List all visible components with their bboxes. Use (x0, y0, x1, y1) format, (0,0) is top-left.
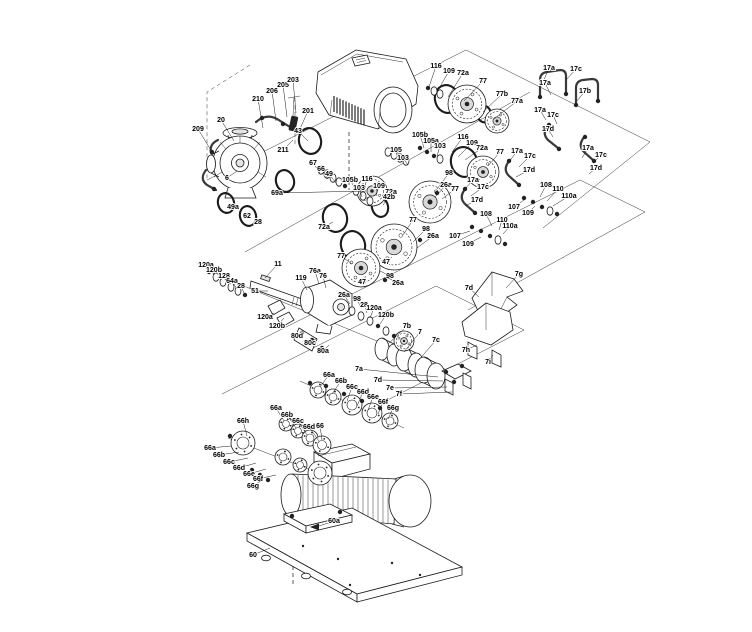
part-number: 77 (479, 78, 487, 85)
part-number: 80c (304, 340, 316, 347)
part-number: 67 (309, 160, 317, 167)
fastener (473, 211, 477, 215)
part-number: 43 (294, 128, 302, 135)
part-number: 7e (386, 385, 394, 392)
part-number: 17c (547, 112, 559, 119)
foot-bolt (262, 555, 271, 561)
part-number: 66g (247, 483, 259, 490)
motor-end-bell (389, 475, 431, 527)
pump-housing (207, 128, 268, 199)
part-number: 7d (374, 377, 382, 384)
fastener (425, 150, 429, 154)
part-number: 211 (277, 147, 288, 154)
part-number: 72a (318, 224, 330, 231)
part-number: 17c (524, 153, 536, 160)
coupling-half (382, 413, 398, 429)
washer (547, 207, 553, 215)
part-number: 17a (511, 148, 523, 155)
part-number: 7i (485, 359, 491, 366)
part-number: 107 (508, 204, 520, 211)
part-number: 77a (511, 98, 523, 105)
part-number: 116 (430, 63, 441, 70)
part-number: 98 (445, 170, 453, 177)
part-number: 69a (271, 190, 283, 197)
part-number: 210 (252, 96, 264, 103)
part-number: 120b (269, 323, 285, 330)
part-number: 17c (595, 152, 607, 159)
fastener (574, 103, 578, 107)
part-number: 77b (496, 91, 508, 98)
fastener (338, 510, 342, 514)
part-number: 105b (342, 177, 358, 184)
part-number: 17c (570, 66, 582, 73)
fastener (266, 478, 270, 482)
part-number: 119 (295, 275, 306, 282)
fastener (444, 370, 448, 374)
coupling-half (279, 417, 293, 431)
drive-unit (316, 50, 418, 133)
part-number: 77 (496, 149, 504, 156)
part-number: 17d (523, 167, 535, 174)
part-number: 80d (291, 333, 303, 340)
part-number: 203 (287, 77, 299, 84)
part-number: 109 (522, 210, 534, 217)
part-number: 72a (457, 70, 469, 77)
coupling-half (308, 461, 332, 485)
fastener (538, 95, 542, 99)
part-number: 17c (477, 184, 489, 191)
part-number: 51 (251, 288, 259, 295)
fastener (324, 384, 328, 388)
part-number: 66g (387, 405, 399, 412)
part-number: 20 (217, 117, 225, 124)
part-number: 7b (403, 323, 411, 330)
part-number: 11 (274, 261, 282, 268)
part-number: 17d (590, 165, 602, 172)
part-number: 7d (465, 285, 473, 292)
part-number: 17d (542, 126, 554, 133)
part-number: 77 (409, 217, 417, 224)
part-number: 28 (237, 283, 245, 290)
part-number: 66a (323, 372, 335, 379)
washer (431, 87, 437, 95)
part-number: 66a (204, 445, 216, 452)
part-number: 66h (237, 418, 249, 425)
washer (437, 155, 443, 163)
part-number: 49a (227, 204, 239, 211)
fastener (583, 135, 587, 139)
washer (367, 317, 373, 325)
part-number: 62 (243, 213, 251, 220)
part-number: 66b (213, 452, 225, 459)
part-number: 26a (427, 233, 439, 240)
fastener (342, 392, 346, 396)
fastener (243, 293, 247, 297)
coupling-half (342, 395, 362, 415)
parts-diagram: 20920210206205203201211649a6228436766496… (0, 0, 752, 632)
fastener (488, 234, 492, 238)
part-number: 60a (328, 518, 340, 525)
fastener (564, 92, 568, 96)
part-number: 17a (534, 107, 546, 114)
part-number: 103 (353, 185, 365, 192)
fastener (555, 212, 559, 216)
washer (358, 312, 364, 320)
washer (367, 197, 373, 205)
part-number: 109 (462, 241, 474, 248)
part-number: 110a (502, 223, 517, 230)
part-number: 7f (396, 391, 403, 398)
part-number: 47 (358, 279, 366, 286)
part-number: 7c (432, 337, 440, 344)
base-plate (247, 504, 462, 602)
part-number: 42b (383, 194, 395, 201)
fastener (392, 334, 396, 338)
part-number: 17a (467, 177, 479, 184)
fastener (517, 183, 521, 187)
part-number: 17a (582, 145, 594, 152)
motor-flange (281, 474, 301, 516)
fastener (418, 146, 422, 150)
part-number: 108 (480, 211, 492, 218)
fastener (228, 434, 232, 438)
part-number: 110a (561, 193, 576, 200)
fastener (308, 381, 312, 385)
fastener (432, 154, 436, 158)
part-number: 17d (471, 197, 483, 204)
part-number: 209 (192, 126, 204, 133)
part-number: 72a (476, 145, 488, 152)
callout-leader (283, 85, 287, 117)
part-number: 7h (462, 347, 470, 354)
fastener (557, 147, 561, 151)
coupling-half (362, 403, 382, 423)
part-number: 49 (325, 171, 333, 178)
fastener (426, 86, 430, 90)
fastener (460, 364, 464, 368)
part-number: 77 (451, 186, 459, 193)
clamp-wedge (268, 300, 285, 315)
washer (437, 90, 443, 98)
fastener (360, 399, 364, 403)
part-number: 66 (317, 166, 325, 173)
fastener (343, 184, 347, 188)
part-number: 28 (254, 219, 262, 226)
fastener (540, 205, 544, 209)
callout-leader (258, 99, 263, 128)
part-number: 6 (225, 175, 229, 182)
part-number: 66f (253, 476, 264, 483)
part-number: 17a (539, 80, 551, 87)
part-number: 26a (338, 292, 350, 299)
exploded-view-svg: 20920210206205203201211649a6228436766496… (0, 0, 752, 632)
fastener (418, 238, 422, 242)
washer (383, 327, 389, 335)
fastener (479, 229, 483, 233)
part-number: 26a (392, 280, 404, 287)
part-number: 116 (361, 176, 372, 183)
shaft-key (261, 275, 271, 282)
part-number: 108 (540, 182, 552, 189)
fastener (260, 116, 264, 120)
motor-stool-bracket (442, 364, 471, 395)
coupling-half (293, 458, 307, 472)
part-number: 98 (422, 226, 430, 233)
fastener (531, 200, 535, 204)
coupling-half (325, 389, 341, 405)
foot-bolt (302, 573, 311, 579)
part-number: 120a (257, 314, 273, 321)
fastener (470, 225, 474, 229)
fastener (452, 380, 456, 384)
part-number: 201 (302, 108, 314, 115)
fastener (290, 514, 294, 518)
coupling-half (310, 382, 326, 398)
fastener (376, 324, 380, 328)
washer (495, 236, 501, 244)
washer (349, 307, 355, 315)
part-number: 66 (316, 423, 324, 430)
fastener (212, 187, 216, 191)
part-number: 77 (337, 253, 345, 260)
part-number: 66a (270, 405, 282, 412)
fastener (281, 122, 285, 126)
part-number: 120b (378, 312, 394, 319)
fastener (522, 196, 526, 200)
part-number: 107 (449, 233, 461, 240)
part-number: 103 (397, 155, 409, 162)
part-number: 7a (355, 366, 363, 373)
fastener (596, 99, 600, 103)
part-number: 109 (443, 68, 455, 75)
part-number: 103 (434, 143, 446, 150)
part-number: 7 (418, 329, 422, 336)
part-number: 109 (373, 183, 385, 190)
part-number: 17a (543, 65, 555, 72)
coupling-half (231, 431, 255, 455)
part-number: 105 (390, 147, 402, 154)
part-number: 47 (382, 259, 390, 266)
part-number: 66d (303, 424, 315, 431)
part-number: 76 (319, 273, 327, 280)
part-number: 110 (552, 186, 563, 193)
part-number: 120a (366, 305, 382, 312)
foot-bolt (343, 589, 352, 595)
fastener (503, 242, 507, 246)
fastener (592, 159, 596, 163)
callout-leader (399, 392, 452, 394)
part-number: 60 (249, 552, 257, 559)
part-number: 206 (266, 88, 278, 95)
part-number: 7g (515, 271, 523, 278)
part-number: 80a (317, 348, 329, 355)
coupling-half (275, 449, 291, 465)
part-number: 17b (579, 88, 591, 95)
